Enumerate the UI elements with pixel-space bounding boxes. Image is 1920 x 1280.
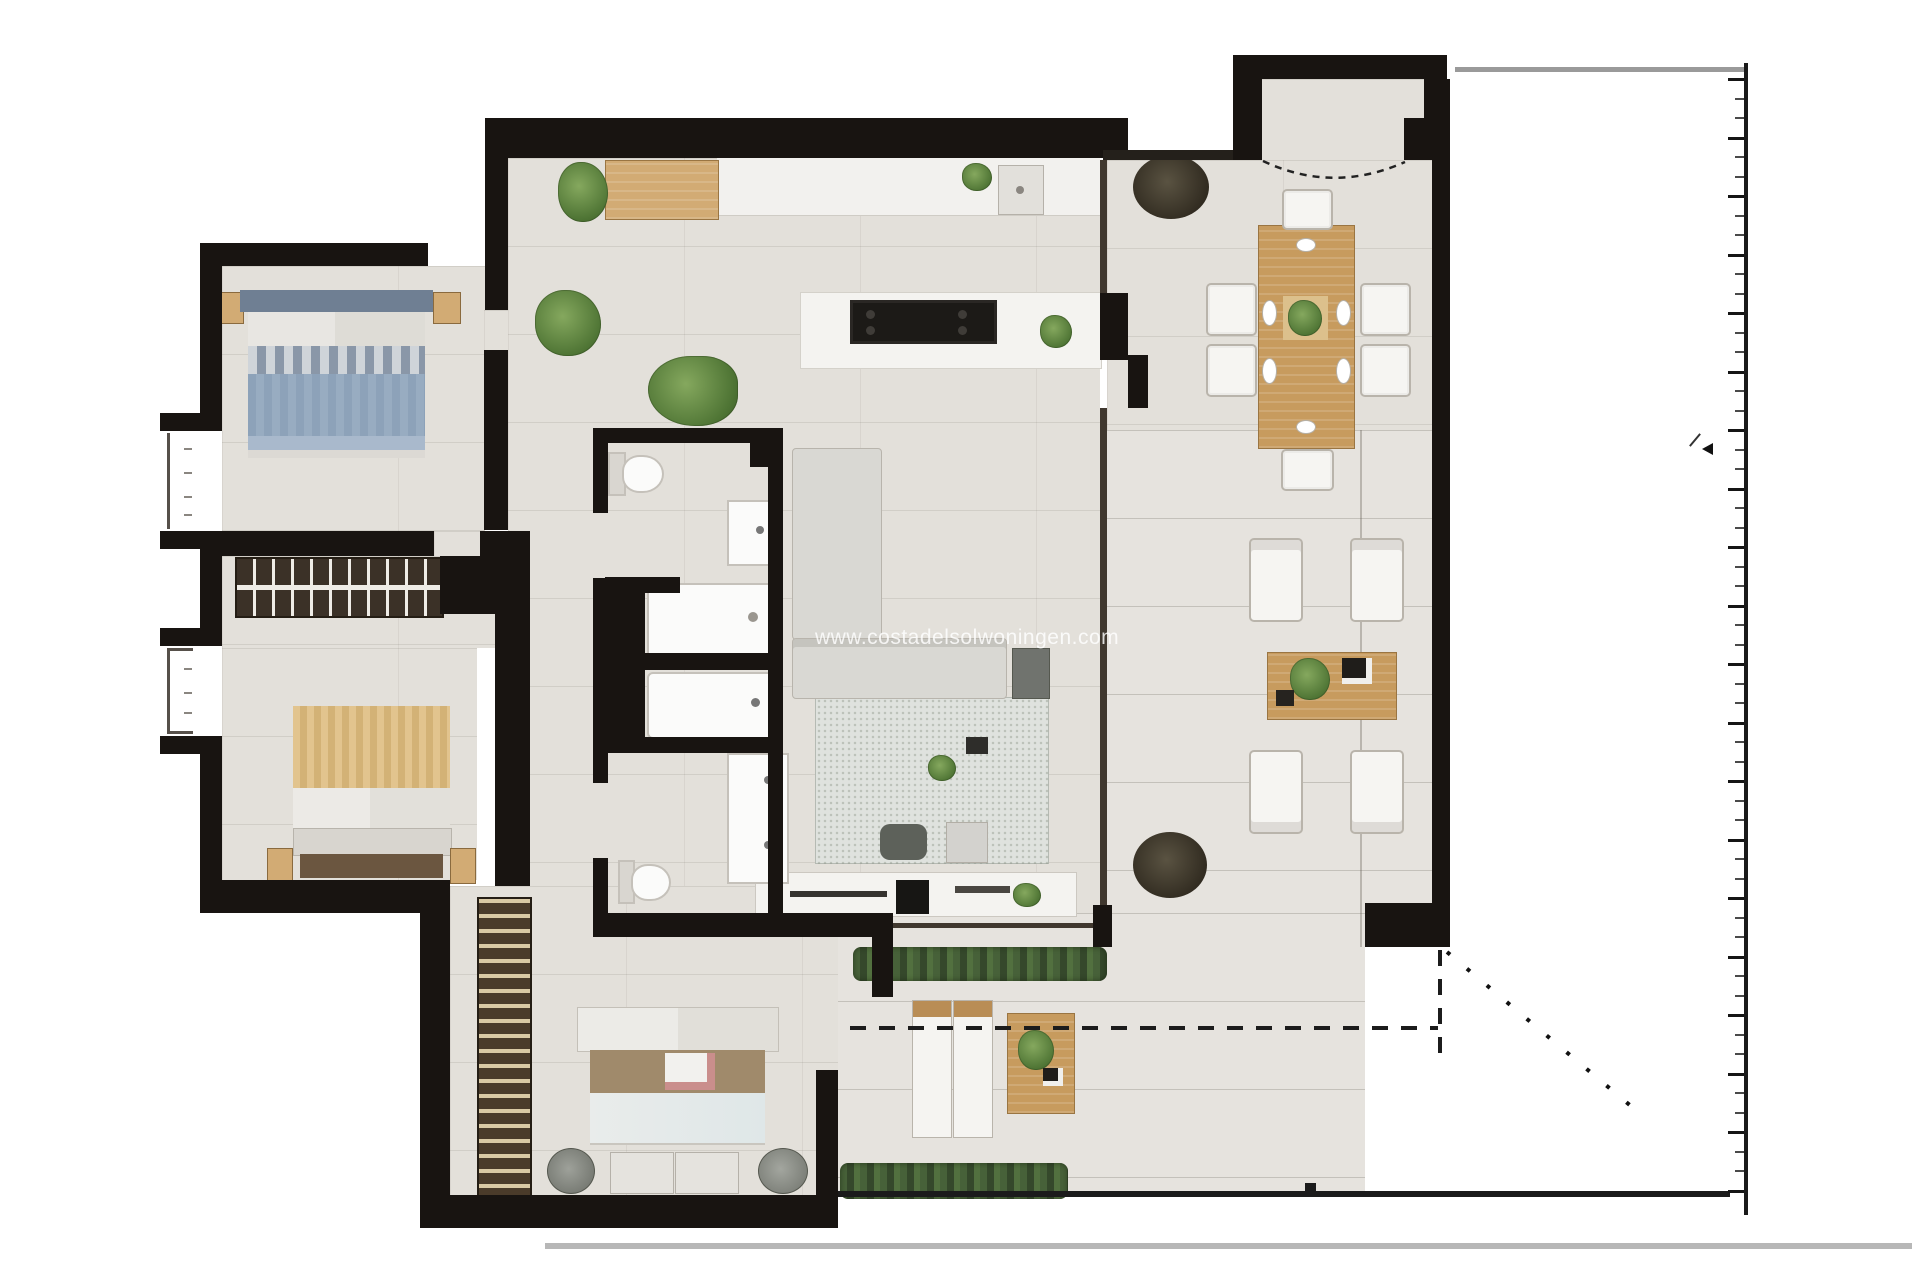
ruler-tick: [1728, 371, 1744, 374]
ruler-tick: [1735, 566, 1744, 568]
ruler-tick: [1735, 800, 1744, 802]
reference-line-bottom-gray: [545, 1243, 1912, 1249]
wall-hall-stub: [484, 350, 508, 530]
master-bed-duvet: [590, 1093, 765, 1145]
window-tick: [184, 448, 192, 450]
floor-plan-canvas: www.costadelsolwoningen.com: [0, 0, 1920, 1280]
master-bed-tray: [665, 1053, 715, 1090]
bathtub-faucet: [751, 698, 760, 707]
bed-blue-quilt-band: [248, 346, 425, 374]
plant: [1018, 1030, 1054, 1070]
soundbar: [790, 891, 887, 897]
cooktop-burner: [958, 310, 967, 319]
bed-blue-duvet-edge: [248, 436, 425, 450]
glass-door-track-south: [893, 923, 1100, 928]
wall-bath-right: [768, 443, 783, 913]
window-stub: [160, 531, 222, 549]
cross-hatch-wardrobe: [235, 557, 444, 618]
master-bed-pillows: [577, 1007, 779, 1052]
kitchen-sideboard: [605, 160, 719, 220]
window-stub: [160, 736, 222, 754]
place-setting: [1336, 358, 1351, 384]
dining-chair: [1281, 449, 1334, 491]
window-tick: [184, 668, 192, 670]
bed-blue-duvet: [248, 374, 425, 436]
wall-west: [200, 754, 222, 880]
bench: [675, 1152, 739, 1194]
plant: [535, 290, 601, 356]
window-stub: [160, 413, 222, 431]
floor-doorway-patch1: [484, 310, 508, 350]
wall-bath-divider: [593, 737, 783, 753]
nightstand: [267, 848, 293, 884]
wall-bath-mid-block: [605, 578, 645, 738]
ruler-tick: [1728, 722, 1744, 725]
cooktop: [850, 300, 997, 344]
table-item-dark: [1276, 690, 1294, 706]
window-glass-line: [167, 731, 193, 734]
window-tick: [184, 496, 192, 498]
wall-top: [485, 118, 1128, 158]
kitchen-divider-line: [1100, 160, 1107, 293]
ruler-tick: [1735, 585, 1744, 587]
dining-chair: [1282, 189, 1333, 230]
reference-line-top: [1455, 67, 1745, 72]
table-item-dark: [1043, 1068, 1063, 1086]
wall-top-stub: [485, 158, 508, 310]
ruler-tick: [1735, 117, 1744, 119]
ruler-tick: [1728, 897, 1744, 900]
plant-pot-large: [1133, 832, 1207, 898]
plant: [962, 163, 992, 191]
dotted-diagonal-line: [1440, 945, 1650, 1125]
living-room-rug: [815, 697, 1049, 864]
bed-tan-blanket: [293, 706, 450, 788]
ruler-tick: [1728, 663, 1744, 666]
watermark: www.costadelsolwoningen.com: [815, 626, 1119, 650]
ruler-tick: [1728, 780, 1744, 783]
wall-west: [200, 549, 222, 628]
ruler-tick: [1735, 273, 1744, 275]
ruler-tick: [1735, 1170, 1744, 1172]
sun-lounger: [953, 1000, 993, 1138]
round-chair: [758, 1148, 808, 1194]
window-tick: [184, 712, 192, 714]
round-chair: [547, 1148, 595, 1194]
toilet-bowl: [631, 864, 671, 901]
ruler-tick: [1728, 488, 1744, 491]
ruler-marker-stem: [1689, 433, 1701, 447]
ruler-tick: [1728, 1014, 1744, 1017]
sun-lounger: [912, 1000, 952, 1138]
plant-large: [648, 356, 738, 426]
ruler-tick: [1735, 936, 1744, 938]
place-setting: [1296, 420, 1316, 434]
plant-centerpiece: [1288, 300, 1322, 336]
ruler-tick: [1735, 1092, 1744, 1094]
ruler-tick: [1728, 1190, 1744, 1193]
ruler-tick: [1728, 195, 1744, 198]
bed-tan-headboard: [293, 828, 452, 856]
dining-chair: [1206, 283, 1257, 336]
plant: [1290, 658, 1330, 700]
cooktop-burner: [866, 310, 875, 319]
entry-wall-top: [1233, 55, 1447, 79]
boundary-dashed-line: [850, 1026, 1438, 1030]
wall-shower-tub-divider: [645, 653, 783, 670]
ruler-tick: [1735, 507, 1744, 509]
ruler-tick: [1735, 975, 1744, 977]
ruler-tick: [1735, 234, 1744, 236]
ruler-tick: [1735, 351, 1744, 353]
ruler-tick: [1735, 449, 1744, 451]
striped-wardrobe: [477, 897, 532, 1199]
washbasin: [727, 500, 774, 566]
window-tick: [184, 692, 192, 694]
bed-tan-foot-bench: [300, 854, 443, 878]
ruler-tick: [1735, 624, 1744, 626]
ruler-tick: [1735, 390, 1744, 392]
ruler-marker-arrow: [1702, 443, 1713, 455]
window-stub: [160, 628, 222, 646]
ruler-tick: [1728, 254, 1744, 257]
wall-bed1-bottom: [222, 531, 434, 556]
ruler-tick: [1728, 1131, 1744, 1134]
nightstand: [433, 292, 461, 324]
terrace-coffee-table: [1267, 652, 1397, 720]
ruler-tick: [1735, 332, 1744, 334]
ruler-tick: [1735, 702, 1744, 704]
armchair-dark: [1012, 648, 1050, 699]
cooktop-burner: [958, 326, 967, 335]
terrace-armchair: [1350, 750, 1404, 834]
dining-chair: [1360, 283, 1411, 336]
bed-tan-pillows: [293, 788, 450, 828]
plant: [1013, 883, 1041, 907]
wall-bath-left: [593, 753, 608, 783]
ruler-tick: [1735, 761, 1744, 763]
ruler-tick: [1735, 215, 1744, 217]
ruler-tick: [1728, 956, 1744, 959]
terrace-armchair: [1249, 750, 1303, 834]
wall-west: [200, 266, 222, 415]
washbasin-faucet: [756, 526, 764, 534]
bed-blue-headboard: [240, 290, 433, 312]
nightstand: [450, 848, 476, 884]
ruler-tick: [1735, 1053, 1744, 1055]
place-setting: [1262, 300, 1277, 326]
kitchen-divider-block: [1128, 355, 1148, 408]
sofa-chaise: [792, 448, 882, 640]
ruler-tick: [1735, 1151, 1744, 1153]
terrace-armchair: [1249, 538, 1303, 622]
plant-pot-large: [1133, 155, 1209, 219]
wall-bed2-bottom: [200, 880, 450, 913]
ruler-tick: [1735, 917, 1744, 919]
ruler-tick: [1728, 312, 1744, 315]
ruler-tick: [1735, 995, 1744, 997]
ruler-tick: [1735, 644, 1744, 646]
ruler-tick: [1735, 156, 1744, 158]
ruler-tick: [1728, 78, 1744, 81]
ruler-tick: [1735, 858, 1744, 860]
wall-column-a: [420, 880, 450, 1228]
window-tick: [184, 514, 192, 516]
wall-corner-bit: [1093, 905, 1112, 947]
ruler-tick: [1728, 1073, 1744, 1076]
tray-dark: [966, 737, 988, 754]
ruler-tick: [1735, 176, 1744, 178]
tv-box: [896, 880, 929, 914]
ottoman: [946, 822, 988, 863]
bed-blue-pillows: [248, 312, 425, 346]
bed-blue-foot-line: [248, 450, 425, 458]
ruler-tick: [1735, 741, 1744, 743]
window-line-top: [1103, 150, 1240, 160]
plant: [928, 755, 956, 781]
ruler-tick: [1735, 1034, 1744, 1036]
wall-bath-left: [593, 858, 608, 913]
ruler-tick: [1735, 878, 1744, 880]
wall-post-southwest: [872, 937, 893, 997]
wall-bed1-top: [200, 243, 428, 266]
wall-east-bottom-block: [1365, 903, 1450, 947]
reference-line-notch: [1305, 1183, 1316, 1192]
sink-faucet: [1016, 186, 1024, 194]
ruler-tick: [1735, 527, 1744, 529]
wall-bed1-bottom: [480, 531, 530, 556]
ruler-tick: [1735, 98, 1744, 100]
ruler-tick: [1728, 839, 1744, 842]
ruler-tick: [1728, 137, 1744, 140]
window-glass-line: [167, 648, 170, 734]
ruler-line: [1744, 63, 1748, 1215]
wall-south-main: [593, 913, 893, 937]
ruler-tick: [1728, 546, 1744, 549]
place-setting: [1296, 238, 1316, 252]
pouf: [880, 824, 927, 860]
wall-east: [1432, 79, 1450, 947]
ruler-tick: [1735, 819, 1744, 821]
plant: [1040, 315, 1072, 348]
ruler-tick: [1735, 1112, 1744, 1114]
cooktop-burner: [866, 326, 875, 335]
plant: [558, 162, 608, 222]
place-setting: [1262, 358, 1277, 384]
ruler-tick: [1735, 293, 1744, 295]
window-glass-line: [167, 648, 193, 651]
floor-doorway-patch2: [434, 531, 480, 556]
glass-wall-east: [1100, 408, 1107, 915]
terrace-armchair: [1350, 538, 1404, 622]
dining-chair: [1360, 344, 1411, 397]
wall-bath-left: [593, 443, 608, 513]
reference-line-bottom-black: [838, 1191, 1730, 1197]
floor-vestibule: [1257, 79, 1424, 160]
ruler-tick: [1728, 605, 1744, 608]
wall-bath-divider: [605, 577, 680, 593]
ruler-tick: [1735, 683, 1744, 685]
shower-drain: [748, 612, 758, 622]
console-deco: [955, 886, 1010, 893]
wall-master-right-stub: [816, 1070, 838, 1195]
window-glass-line: [167, 433, 170, 529]
ruler-tick: [1735, 410, 1744, 412]
table-tray-dark: [1342, 658, 1372, 684]
wall-wardrobe-block: [440, 556, 495, 614]
dining-chair: [1206, 344, 1257, 397]
place-setting: [1336, 300, 1351, 326]
entry-door-swing-arc: [1255, 150, 1415, 192]
ruler-tick: [1735, 468, 1744, 470]
ruler-tick: [1728, 429, 1744, 432]
toilet-bowl: [622, 455, 664, 493]
bench: [610, 1152, 674, 1194]
window-tick: [184, 472, 192, 474]
kitchen-divider-block: [1100, 293, 1128, 360]
wall-column-b: [495, 556, 530, 886]
wall-master-bottom: [420, 1195, 838, 1228]
